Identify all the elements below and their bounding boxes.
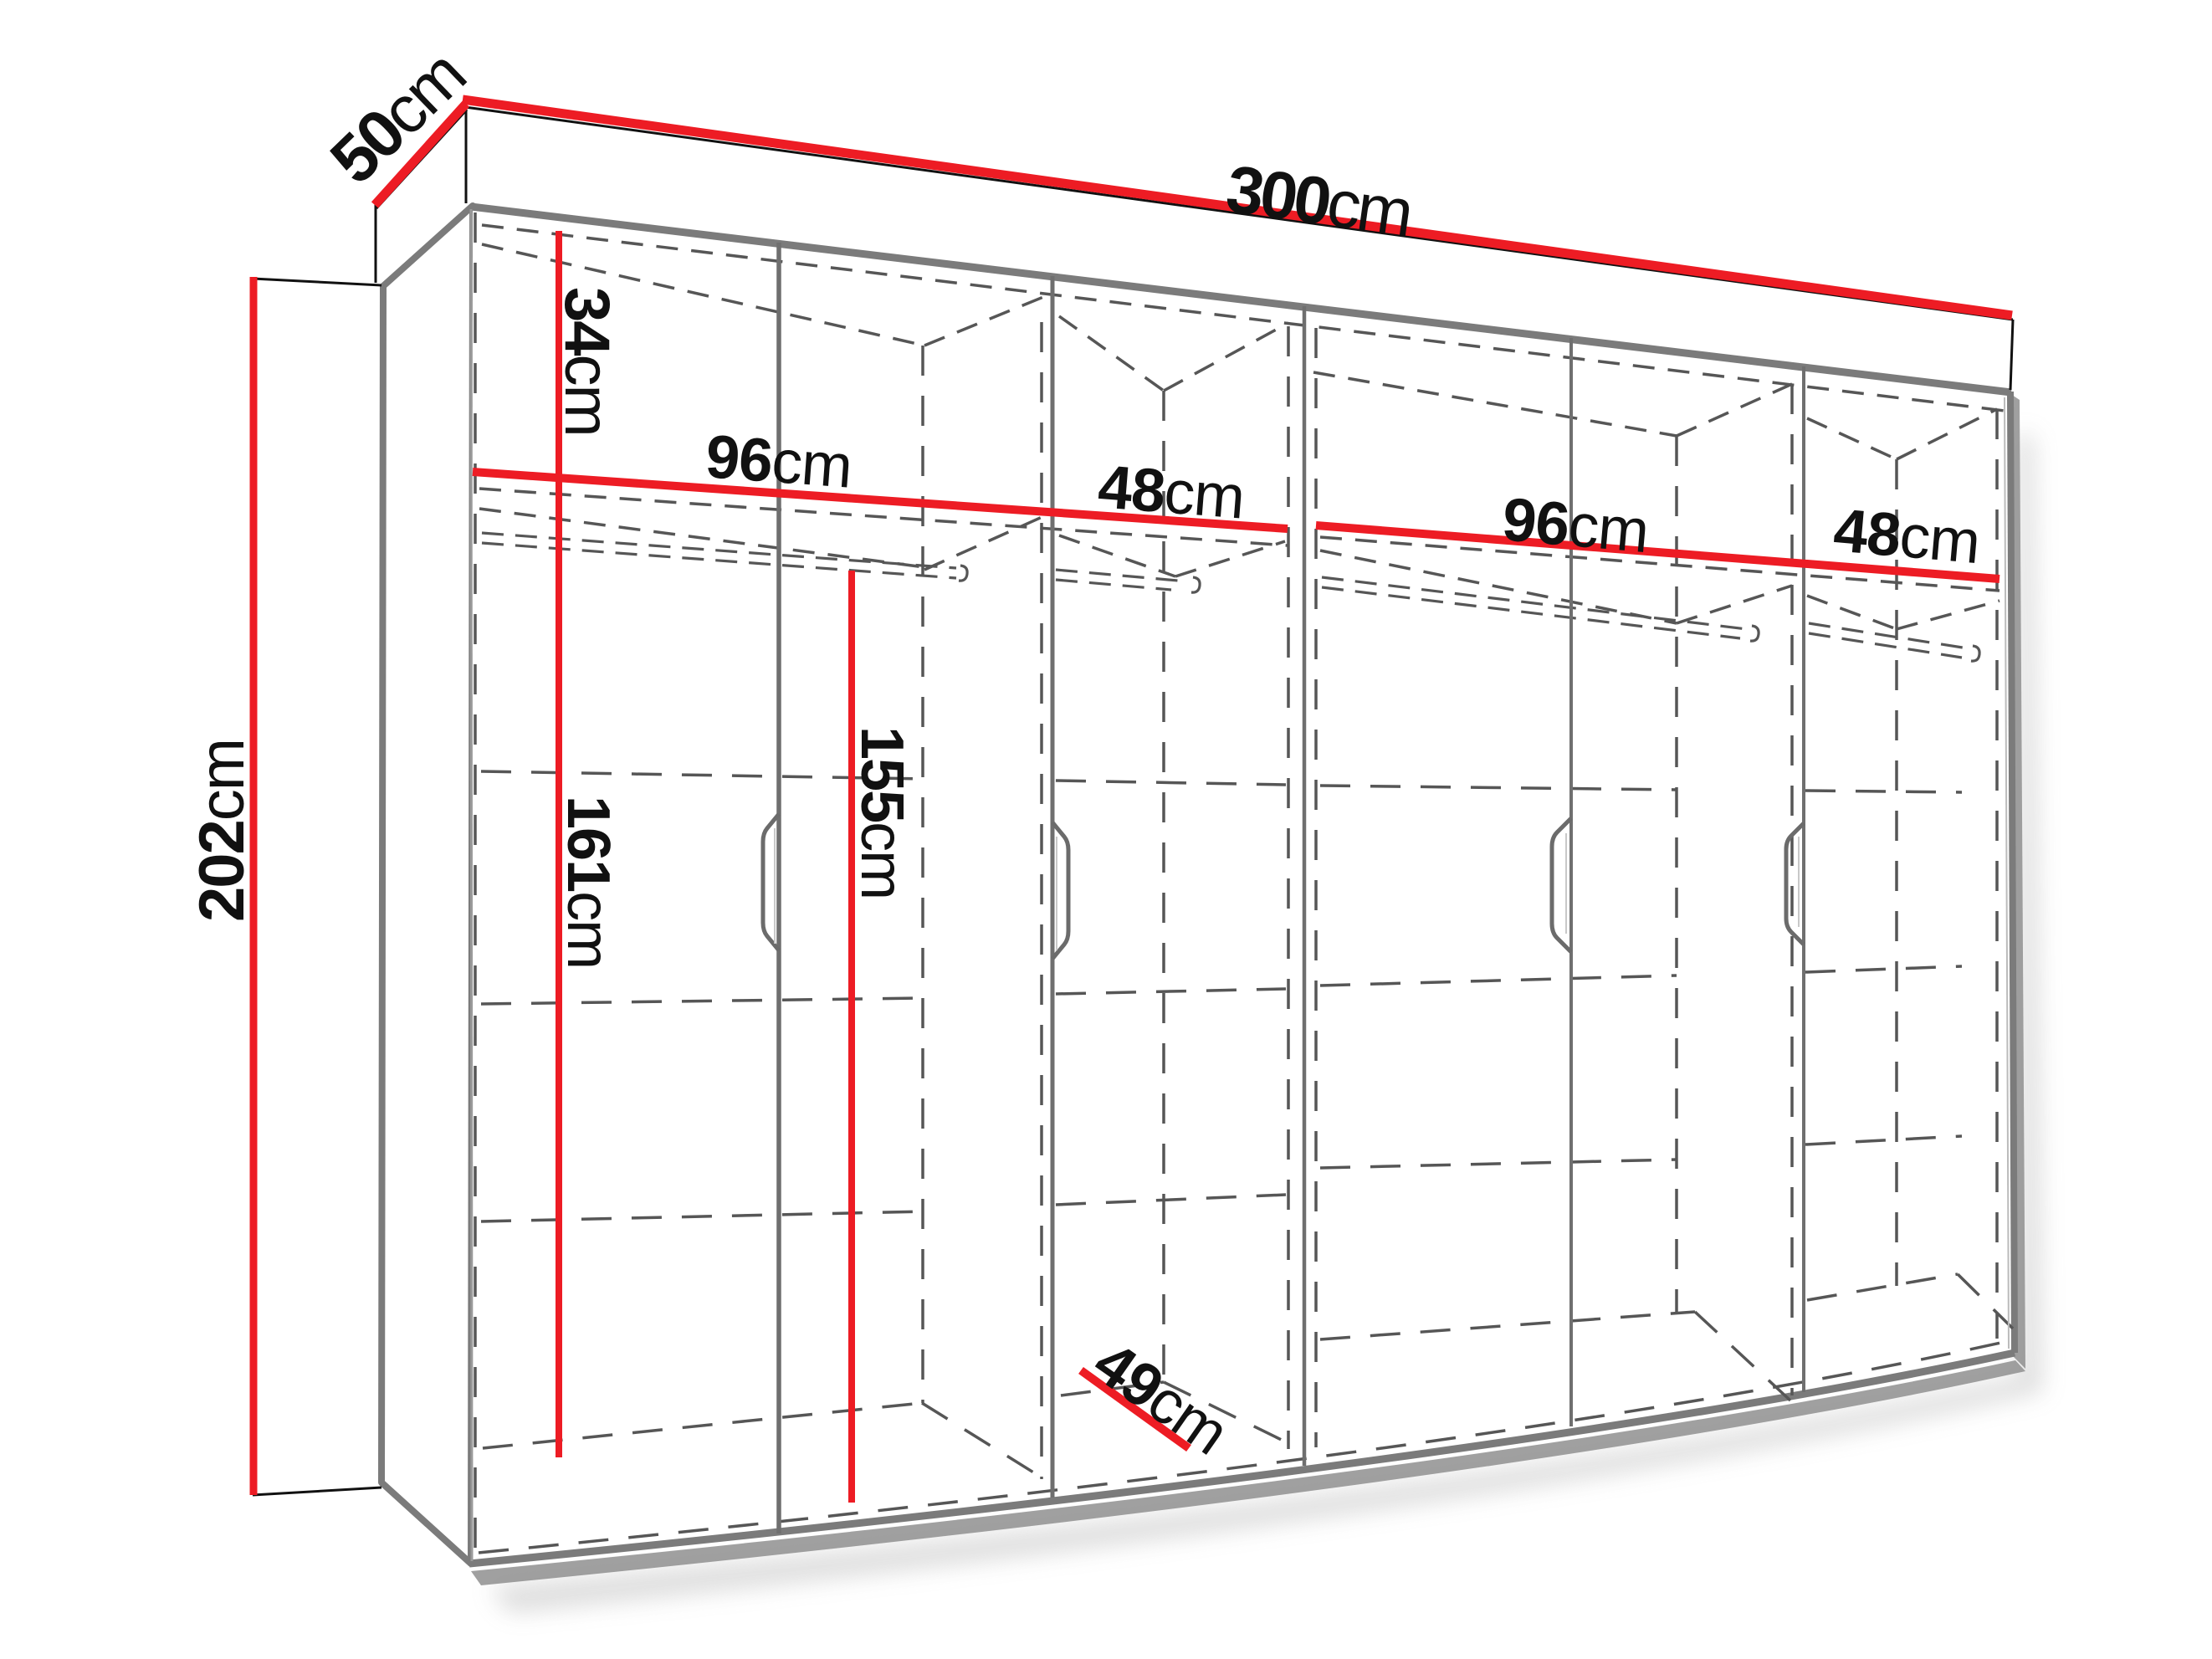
- svg-text:34cm: 34cm: [551, 287, 622, 436]
- svg-text:300cm: 300cm: [1222, 151, 1415, 250]
- svg-text:96cm: 96cm: [1500, 485, 1651, 566]
- svg-text:202cm: 202cm: [187, 740, 258, 922]
- svg-text:161cm: 161cm: [555, 796, 622, 968]
- svg-text:155cm: 155cm: [848, 726, 915, 899]
- svg-text:48cm: 48cm: [1831, 496, 1983, 576]
- svg-text:48cm: 48cm: [1096, 453, 1247, 531]
- svg-text:96cm: 96cm: [704, 422, 854, 501]
